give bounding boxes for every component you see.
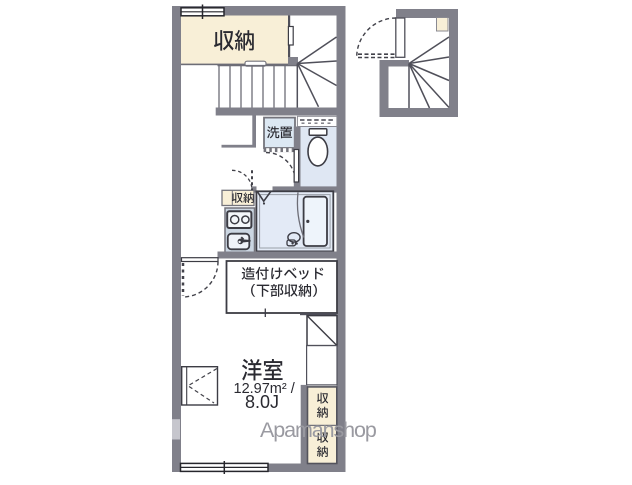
svg-text:Apamanshop: Apamanshop <box>260 418 377 442</box>
svg-text:8.0J: 8.0J <box>245 392 279 412</box>
